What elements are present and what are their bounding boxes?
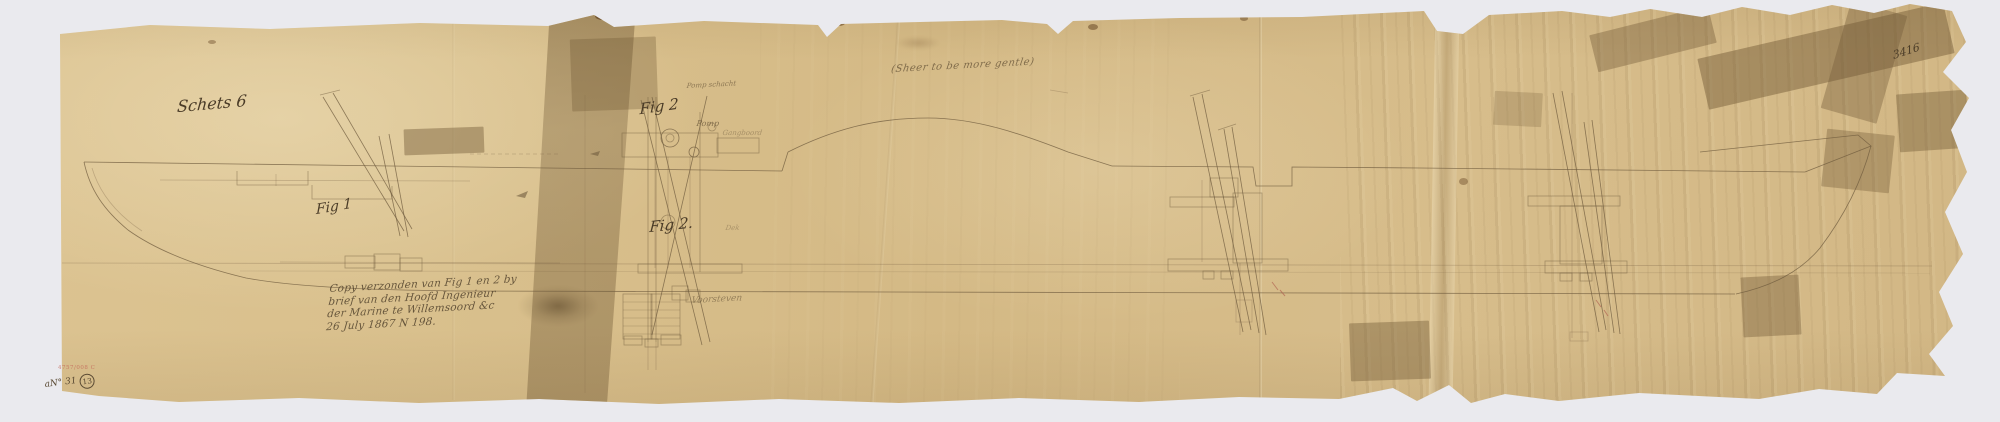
accession-number: 4757/008 C bbox=[58, 365, 95, 371]
tape-strip-left bbox=[404, 127, 485, 156]
inventory-circle-number: 13 bbox=[79, 373, 96, 390]
foxing-spot bbox=[208, 40, 216, 44]
paper-crease bbox=[1259, 8, 1262, 406]
foxing-spot bbox=[1240, 16, 1248, 21]
ink-stain bbox=[518, 286, 598, 326]
foxing-spot bbox=[595, 12, 611, 20]
tape-patch-right-upper bbox=[1896, 90, 1970, 153]
dispatch-note: Copy verzonden van Fig 1 en 2 by brief v… bbox=[326, 275, 490, 334]
pomp-label: Pomp bbox=[696, 120, 720, 129]
foxing-spot bbox=[1088, 24, 1098, 30]
scanned-ship-plan: Schets 6 (Sheer to be more gentle) Fig 1… bbox=[0, 0, 2000, 422]
inventory-number: aN° 31 bbox=[44, 376, 77, 390]
tape-patch-small bbox=[1493, 91, 1543, 127]
gangboord-label: Gangboord bbox=[722, 130, 763, 138]
dek-label: Dek bbox=[725, 225, 740, 233]
smudge bbox=[896, 36, 940, 50]
paper-crease bbox=[452, 20, 455, 400]
foxing-spot bbox=[833, 20, 845, 26]
tape-patch-right-lower bbox=[1740, 275, 1801, 338]
foxing-spot bbox=[1459, 178, 1468, 185]
tape-patch-right-mid bbox=[1821, 129, 1895, 194]
tape-patch-bottom bbox=[1349, 321, 1431, 382]
